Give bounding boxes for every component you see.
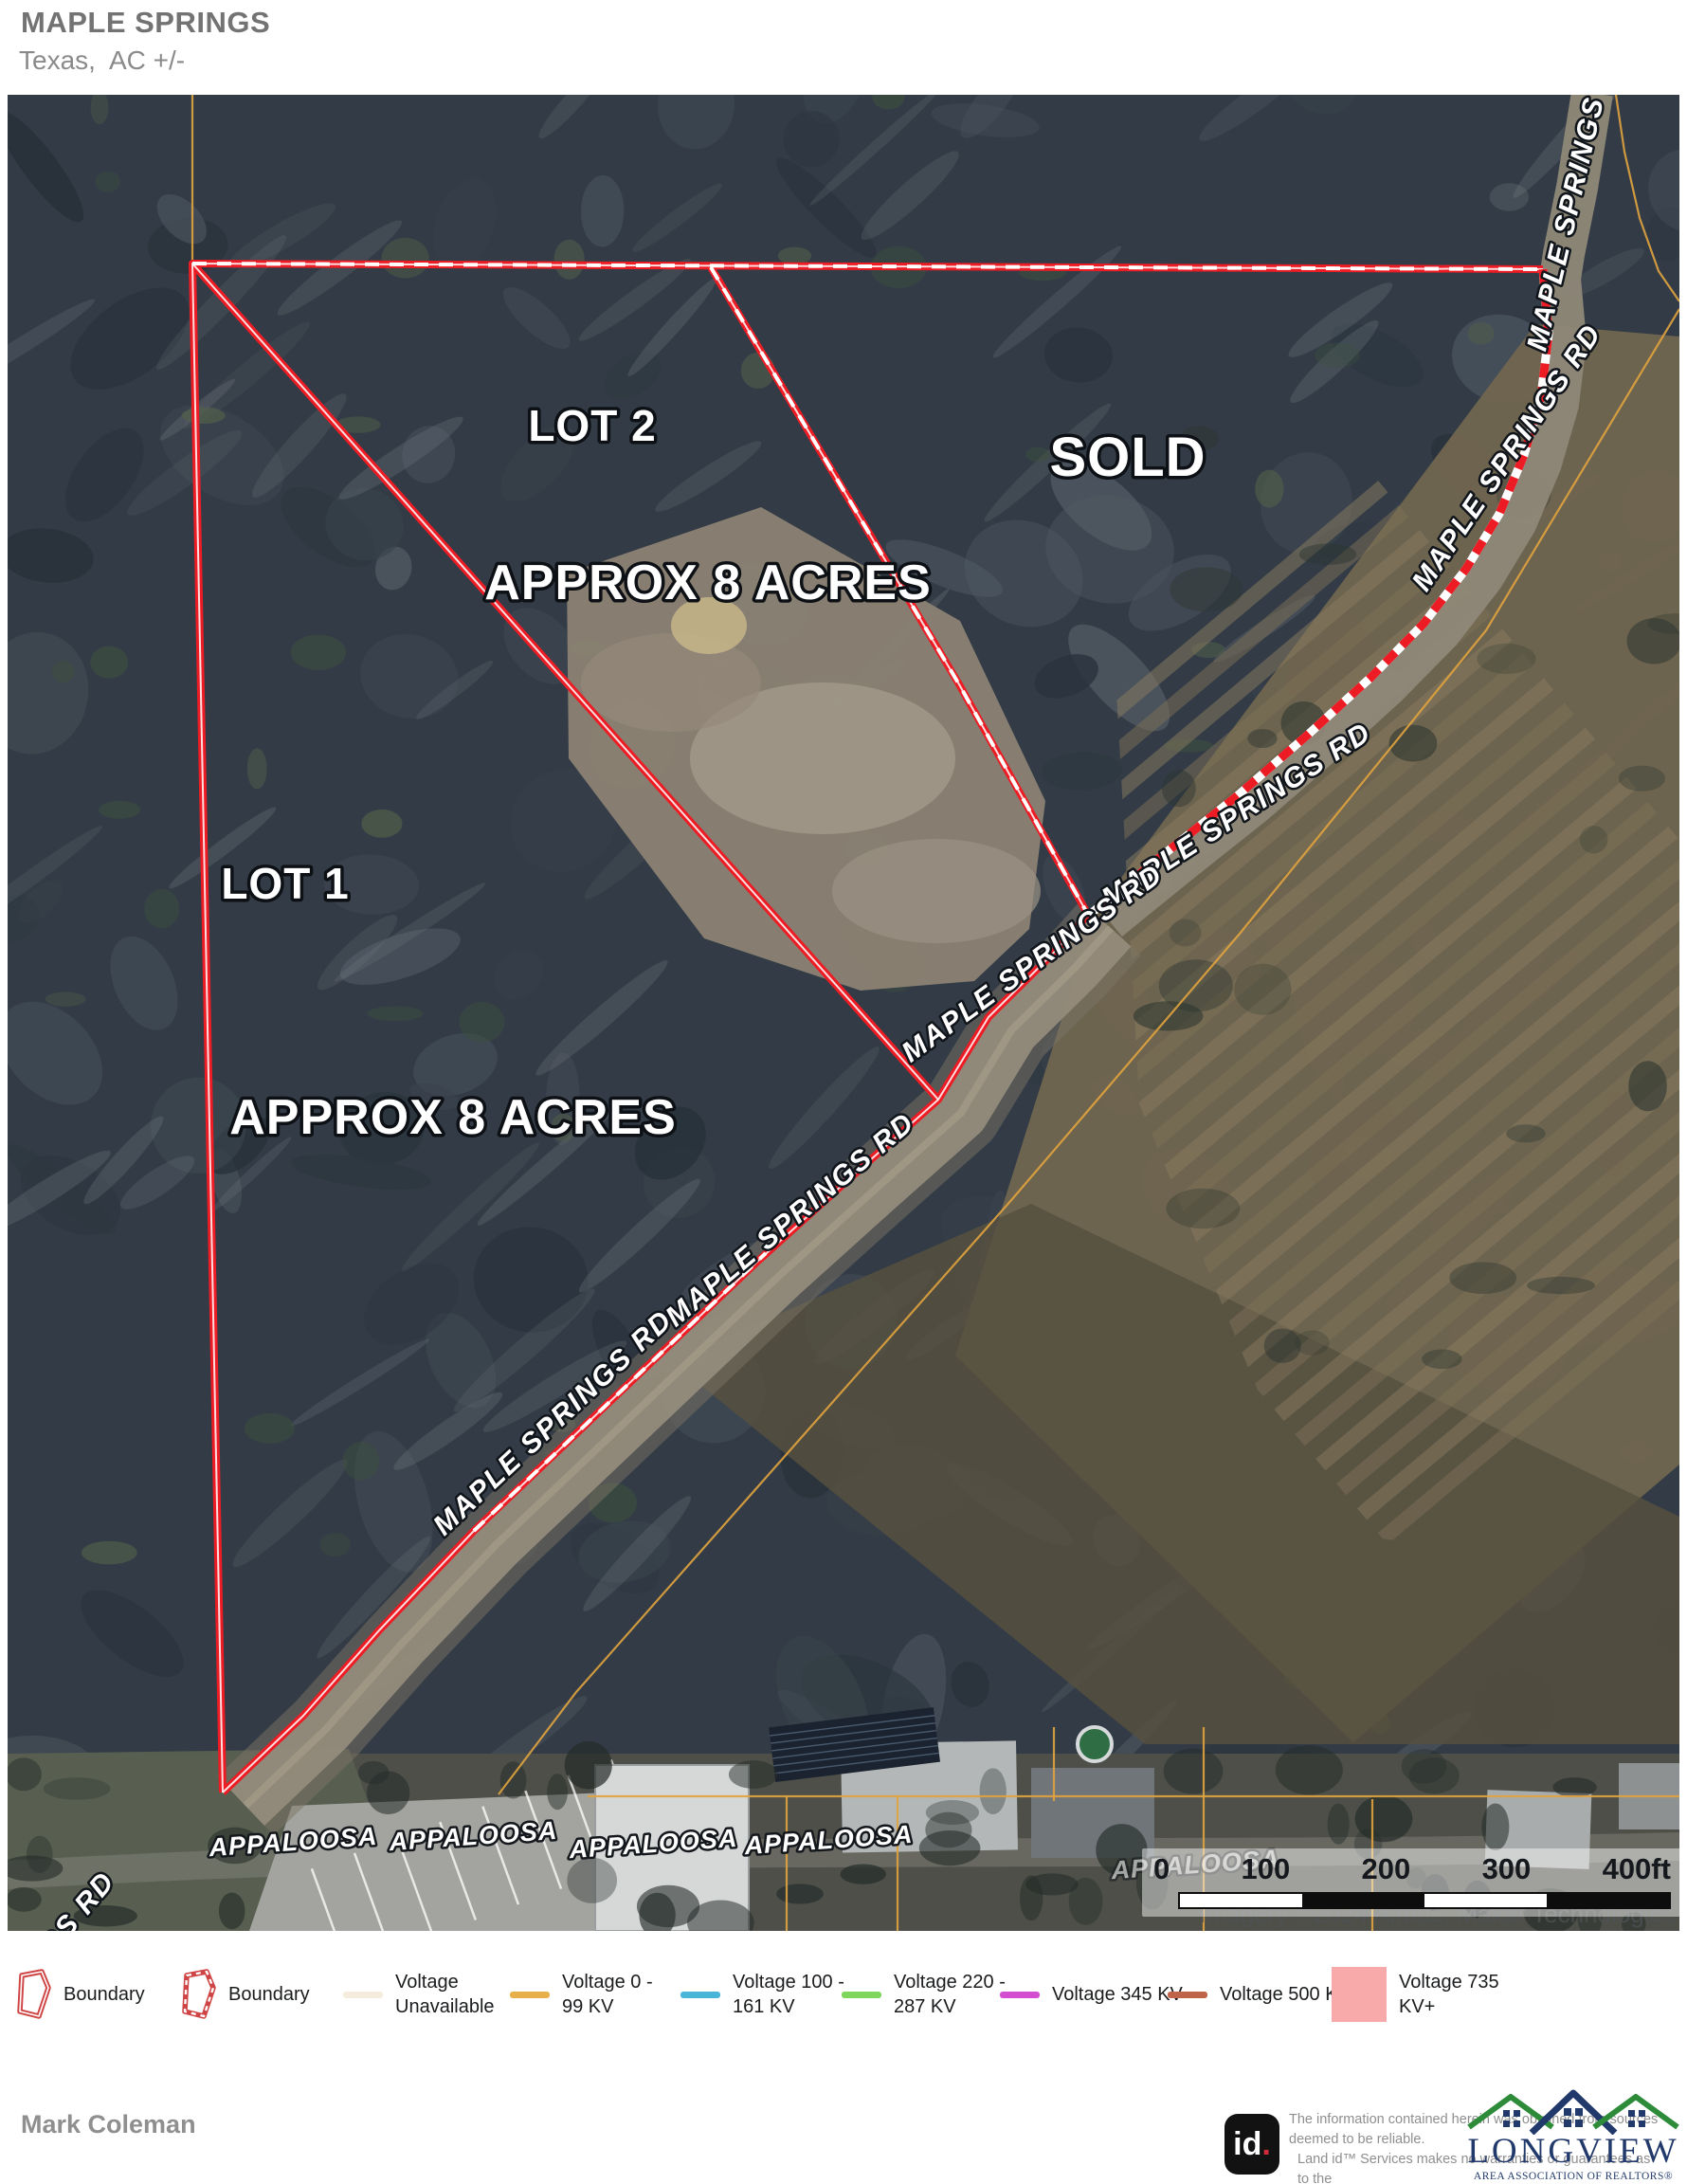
legend-label: Voltage 735 KV+	[1399, 1970, 1511, 2019]
scale-tick: 300	[1482, 1852, 1532, 1886]
legend-label: Voltage Unavailable	[395, 1970, 507, 2019]
satellite-map[interactable]: LOT 2APPROX 8 ACRESSOLDLOT 1APPROX 8 ACR…	[8, 95, 1679, 1931]
scale-tick: 400ft	[1603, 1852, 1671, 1886]
legend-item-voltage-100-161: Voltage 100 - 161 KV	[680, 1956, 844, 2032]
scale-segments	[1178, 1892, 1671, 1909]
legend-item-voltage-345: Voltage 345 KV	[1000, 1956, 1183, 2032]
legend-item-voltage-0-99: Voltage 0 - 99 KV	[510, 1956, 674, 2032]
map-canvas[interactable]: LOT 2APPROX 8 ACRESSOLDLOT 1APPROX 8 ACR…	[8, 95, 1679, 1931]
boundary-solid-icon	[13, 1968, 51, 2021]
legend-label: Voltage 220 - 287 KV	[894, 1970, 1006, 2019]
realtor-association-logo: LONGVIEW AREA ASSOCIATION OF REALTORS®	[1460, 2085, 1687, 2184]
svg-text:APPROX 8 ACRES: APPROX 8 ACRES	[484, 555, 932, 610]
legend-item-voltage-unavailable: Voltage Unavailable	[343, 1956, 507, 2032]
scale-tick: 100	[1242, 1852, 1291, 1886]
voltage-unavailable-swatch	[343, 1992, 383, 1998]
land-id-logo: id.	[1224, 2114, 1279, 2175]
legend-item-voltage-735: Voltage 735 KV+	[1332, 1956, 1511, 2032]
map-legend: Boundary Boundary Voltage Unavailable Vo…	[0, 1956, 1687, 2038]
voltage-500-swatch	[1168, 1992, 1207, 1998]
legend-label: Boundary	[228, 1982, 310, 2007]
legend-label: Voltage 0 - 99 KV	[562, 1970, 674, 2019]
scale-tick: 200	[1362, 1852, 1411, 1886]
realtor-logo-name: LONGVIEW	[1460, 2134, 1687, 2169]
realtor-houses-icon	[1461, 2085, 1685, 2135]
page: MAPLE SPRINGS Texas, AC +/- LOT 2APPROX …	[0, 0, 1687, 2184]
agent-name: Mark Coleman	[21, 2110, 196, 2139]
svg-text:LOT 2: LOT 2	[528, 401, 656, 450]
svg-text:APPROX 8 ACRES: APPROX 8 ACRES	[229, 1090, 677, 1145]
legend-label: Boundary	[63, 1982, 145, 2007]
legend-item-voltage-220-287: Voltage 220 - 287 KV	[842, 1956, 1006, 2032]
voltage-0-99-swatch	[510, 1992, 550, 1998]
legend-label: Voltage 345 KV	[1052, 1982, 1183, 2007]
land-id-logo-dot: .	[1261, 2126, 1270, 2163]
scale-tick: 0	[1153, 1852, 1170, 1886]
voltage-220-287-swatch	[842, 1992, 881, 1998]
realtor-logo-subtitle: AREA ASSOCIATION OF REALTORS®	[1460, 2171, 1687, 2182]
svg-text:LOT 1: LOT 1	[221, 859, 349, 908]
legend-item-boundary-dashed: Boundary	[178, 1956, 310, 2032]
land-id-logo-text: id	[1233, 2126, 1261, 2163]
page-title: MAPLE SPRINGS	[21, 6, 270, 40]
voltage-345-swatch	[1000, 1992, 1040, 1998]
legend-item-boundary-solid: Boundary	[13, 1956, 145, 2032]
svg-text:SOLD: SOLD	[1049, 427, 1206, 488]
voltage-100-161-swatch	[680, 1992, 720, 1998]
legend-label: Voltage 100 - 161 KV	[733, 1970, 844, 2019]
voltage-735-swatch	[1332, 1967, 1387, 2022]
page-subtitle: Texas, AC +/-	[19, 45, 185, 76]
legend-item-voltage-500: Voltage 500 KV	[1168, 1956, 1351, 2032]
scale-bar: 0 100 200 300 400ft	[1142, 1848, 1680, 1917]
boundary-dashed-icon	[178, 1968, 216, 2021]
scale-ticks: 0 100 200 300 400ft	[1153, 1852, 1671, 1886]
